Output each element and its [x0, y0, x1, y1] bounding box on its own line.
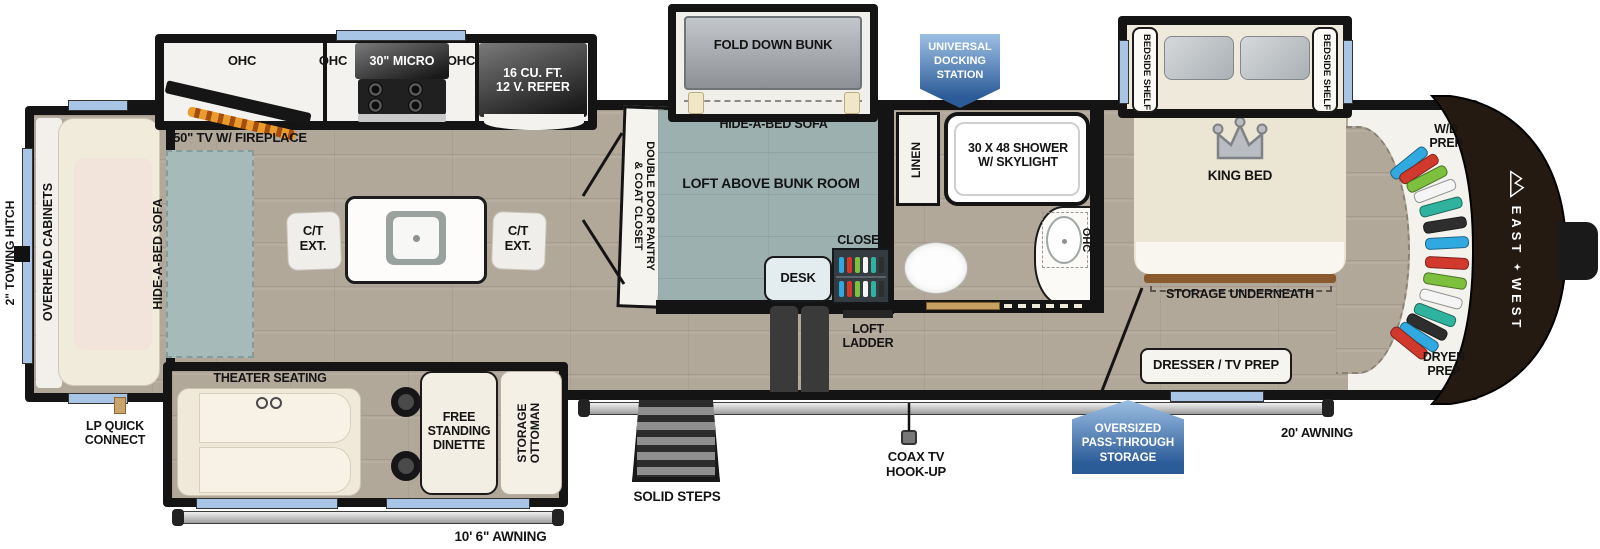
- hitch-pin: [1556, 222, 1598, 280]
- theater-label: THEATER SEATING: [205, 371, 335, 385]
- theater-cushion-2: [199, 447, 351, 493]
- brand-logo: EAST ✦ WEST: [1500, 165, 1534, 335]
- dinette-label: FREE STANDING DINETTE: [422, 410, 496, 452]
- awning-end-cap: [578, 399, 590, 417]
- wd-prep-label: W/D PREP: [1416, 122, 1476, 150]
- coax-plug-icon: [901, 430, 917, 445]
- awning-end-cap: [1322, 399, 1334, 417]
- main-awning-label: 20' AWNING: [1262, 426, 1372, 441]
- ottoman-label: STORAGE OTTOMAN: [516, 371, 546, 495]
- theater-seat-shape: [177, 388, 361, 496]
- solid-steps-label: SOLID STEPS: [612, 489, 742, 504]
- coax-label: COAX TV HOOK-UP: [870, 450, 962, 479]
- lp-label: LP QUICK CONNECT: [68, 419, 162, 447]
- rear-awning-bar: [176, 511, 564, 524]
- cupholder: [270, 397, 282, 409]
- mountain-icon: [1509, 169, 1525, 199]
- dryer-prep-label: DRYER PREP: [1412, 350, 1476, 378]
- slide-window-1: [196, 498, 338, 509]
- compass-icon: ✦: [1512, 263, 1523, 271]
- cupholder: [256, 397, 268, 409]
- rear-awning-label: 10' 6" AWNING: [428, 529, 573, 544]
- lp-connector-icon: [114, 397, 126, 414]
- slide-window-2: [386, 498, 530, 509]
- awning-end-cap: [172, 509, 184, 526]
- hanger-icon: [1424, 255, 1469, 269]
- brand-west: WEST: [1510, 278, 1525, 332]
- solid-steps-shape: [632, 400, 720, 482]
- dinette-chair-1: [391, 387, 421, 417]
- awning-end-cap: [552, 509, 564, 526]
- dinette-chair-2: [391, 451, 421, 481]
- floorplan: OVERHEAD CABINETS HIDE-A-BED SOFA 2" TOW…: [0, 0, 1600, 549]
- brand-east: EAST: [1510, 206, 1525, 257]
